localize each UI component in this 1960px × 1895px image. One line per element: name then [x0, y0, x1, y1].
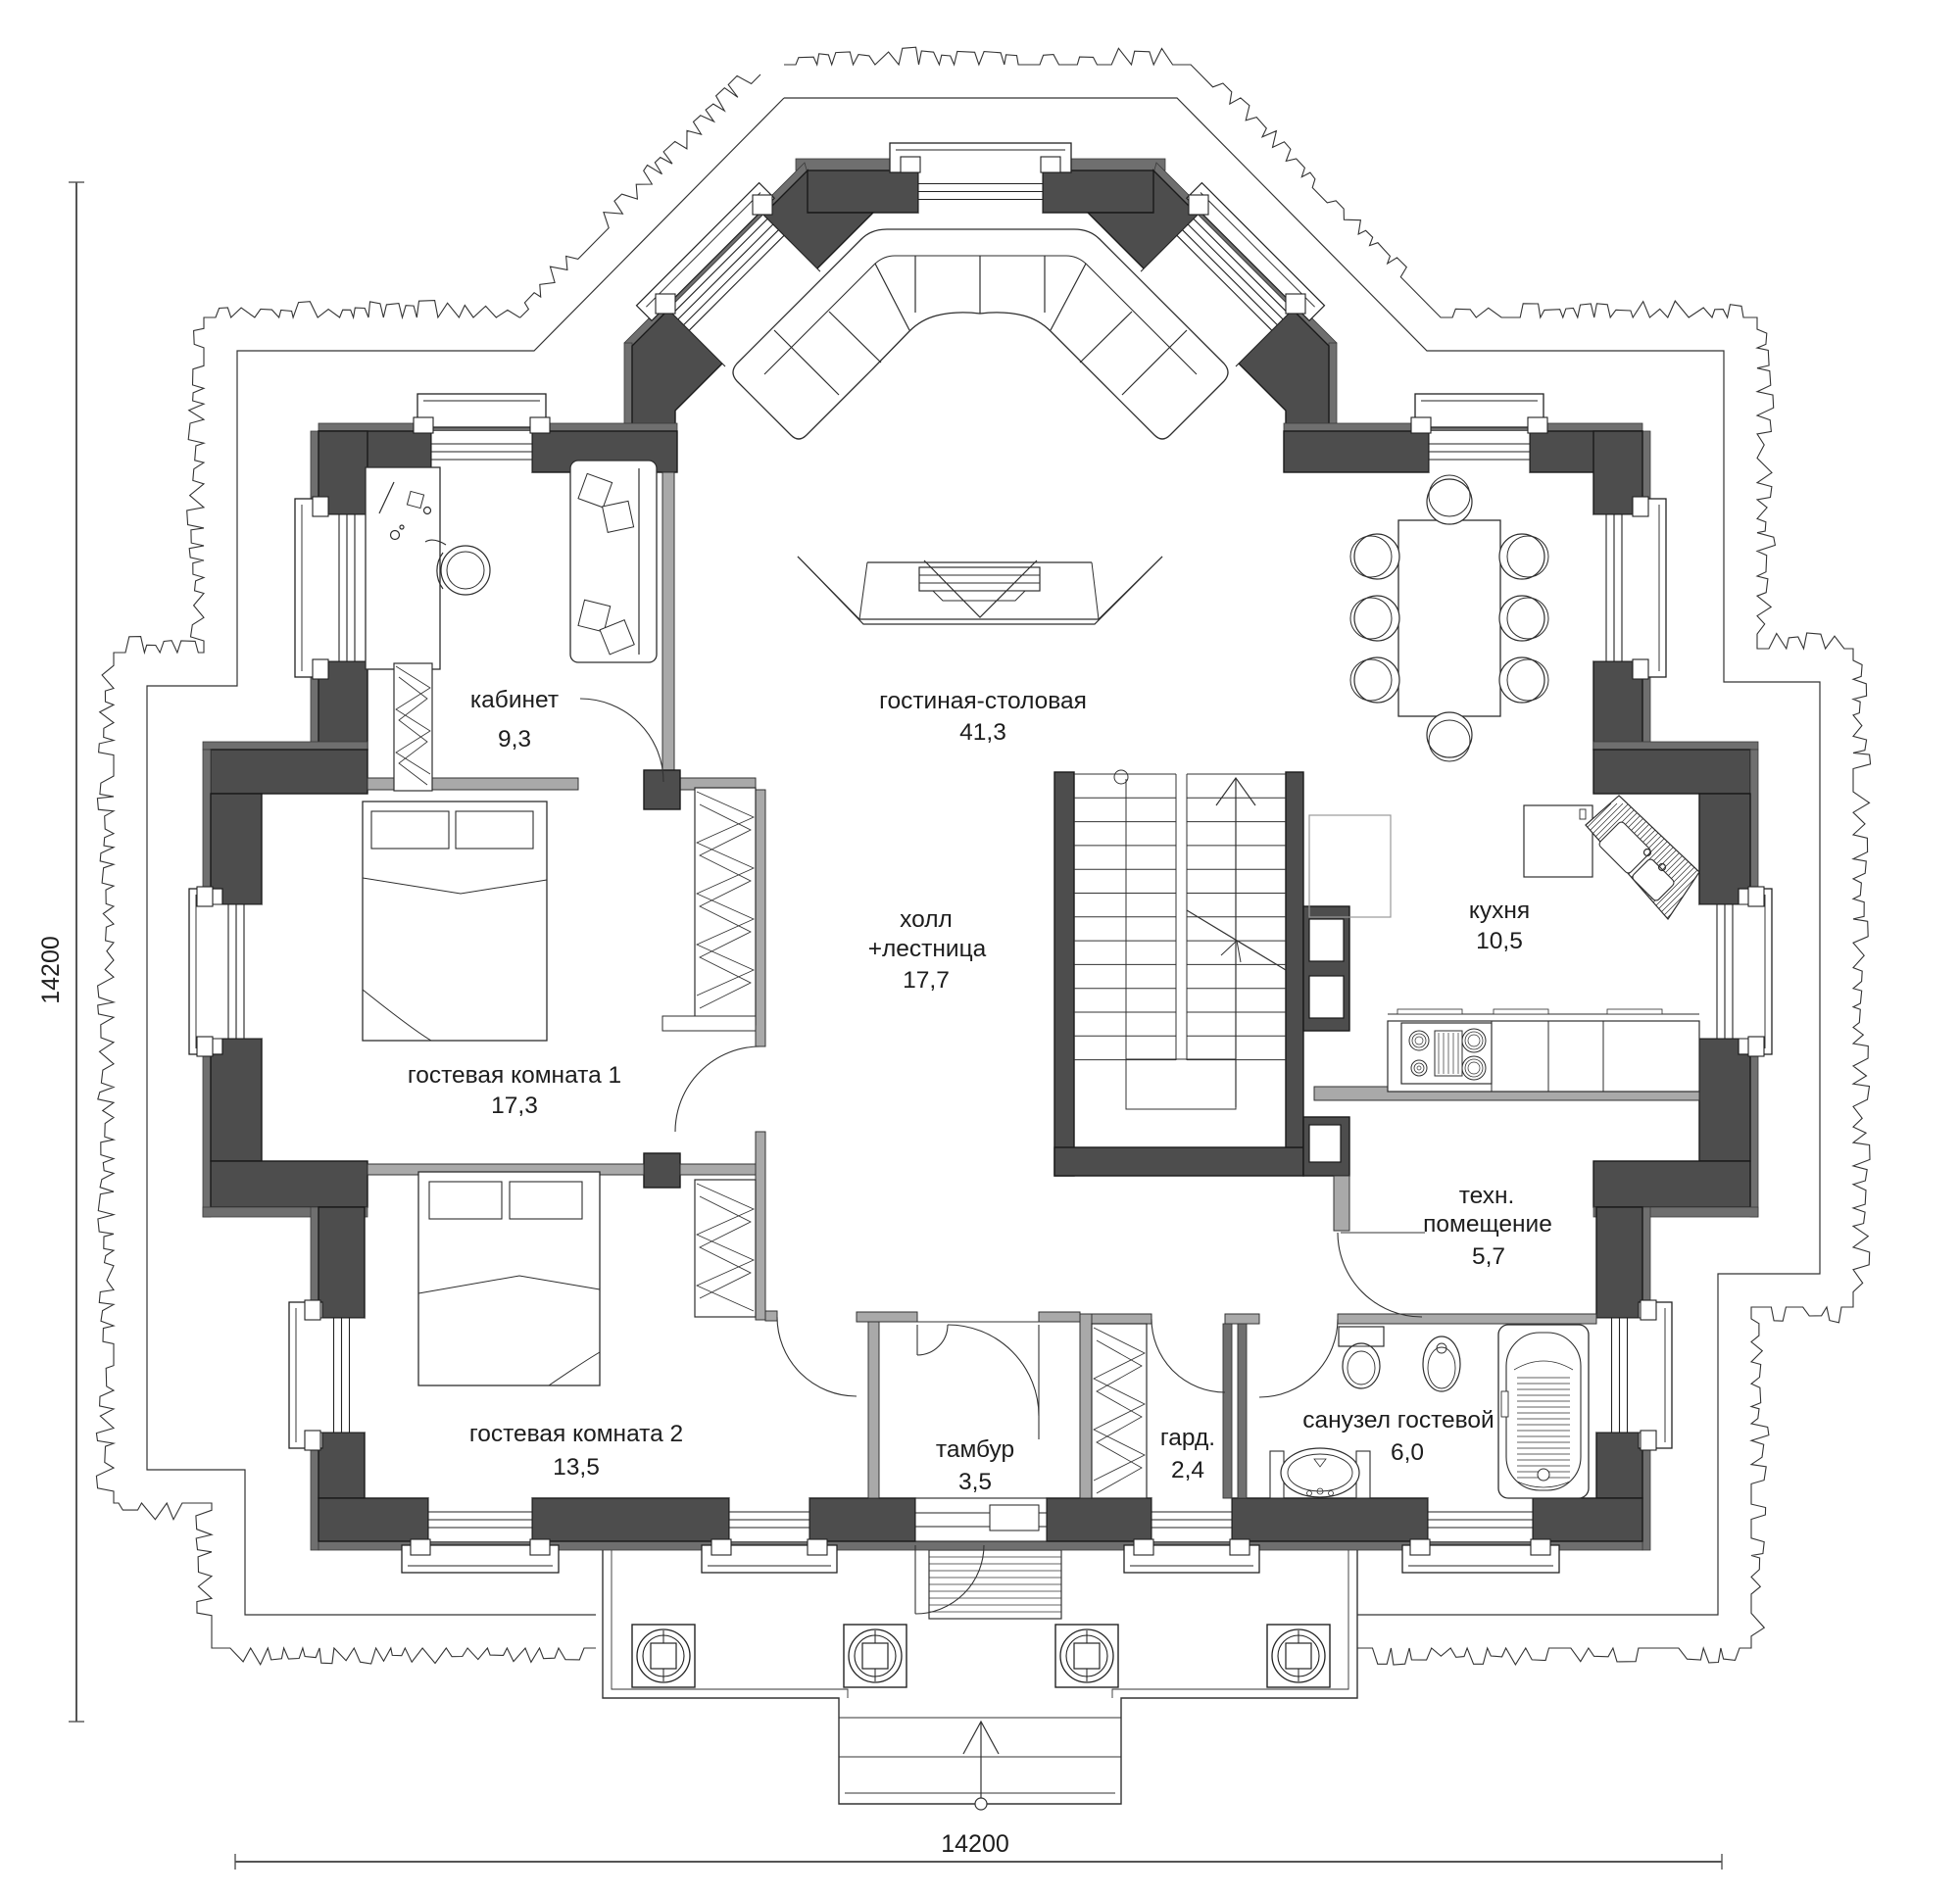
svg-text:санузел гостевой: санузел гостевой — [1302, 1407, 1494, 1433]
svg-text:6,0: 6,0 — [1391, 1439, 1424, 1466]
svg-text:холл: холл — [900, 906, 953, 933]
svg-text:+лестница: +лестница — [868, 936, 987, 962]
svg-text:гостевая комната 1: гостевая комната 1 — [408, 1062, 621, 1089]
svg-text:5,7: 5,7 — [1472, 1243, 1505, 1270]
svg-text:13,5: 13,5 — [553, 1454, 600, 1481]
svg-text:кухня: кухня — [1469, 898, 1530, 924]
svg-text:кабинет: кабинет — [470, 687, 559, 713]
svg-text:гард.: гард. — [1160, 1425, 1215, 1451]
svg-text:9,3: 9,3 — [498, 726, 531, 753]
svg-text:17,7: 17,7 — [903, 967, 950, 994]
svg-text:гостевая комната 2: гостевая комната 2 — [469, 1421, 683, 1447]
svg-text:тамбур: тамбур — [936, 1436, 1014, 1463]
svg-text:гостиная-столовая: гостиная-столовая — [879, 688, 1087, 714]
svg-text:техн.: техн. — [1459, 1183, 1515, 1209]
svg-text:2,4: 2,4 — [1171, 1457, 1204, 1483]
svg-text:14200: 14200 — [941, 1830, 1009, 1858]
svg-text:помещение: помещение — [1423, 1211, 1552, 1238]
svg-text:41,3: 41,3 — [959, 719, 1006, 746]
svg-text:10,5: 10,5 — [1476, 928, 1523, 954]
svg-text:14200: 14200 — [37, 936, 65, 1004]
svg-text:17,3: 17,3 — [491, 1093, 538, 1119]
svg-text:3,5: 3,5 — [958, 1469, 992, 1495]
